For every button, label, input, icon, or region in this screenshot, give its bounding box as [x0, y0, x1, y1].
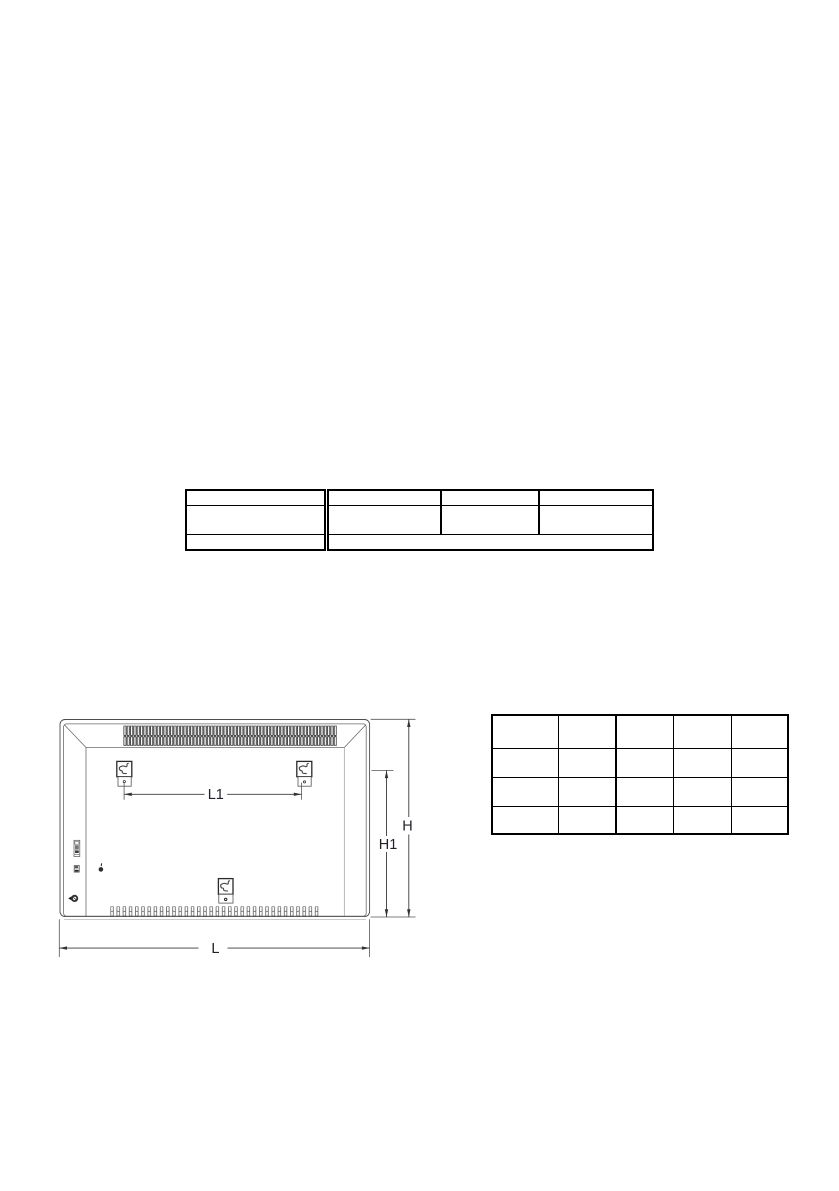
- svg-text:H1: H1: [379, 837, 398, 853]
- svg-text:H: H: [402, 819, 412, 835]
- svg-text:L1: L1: [208, 787, 224, 803]
- svg-text:L: L: [211, 941, 219, 957]
